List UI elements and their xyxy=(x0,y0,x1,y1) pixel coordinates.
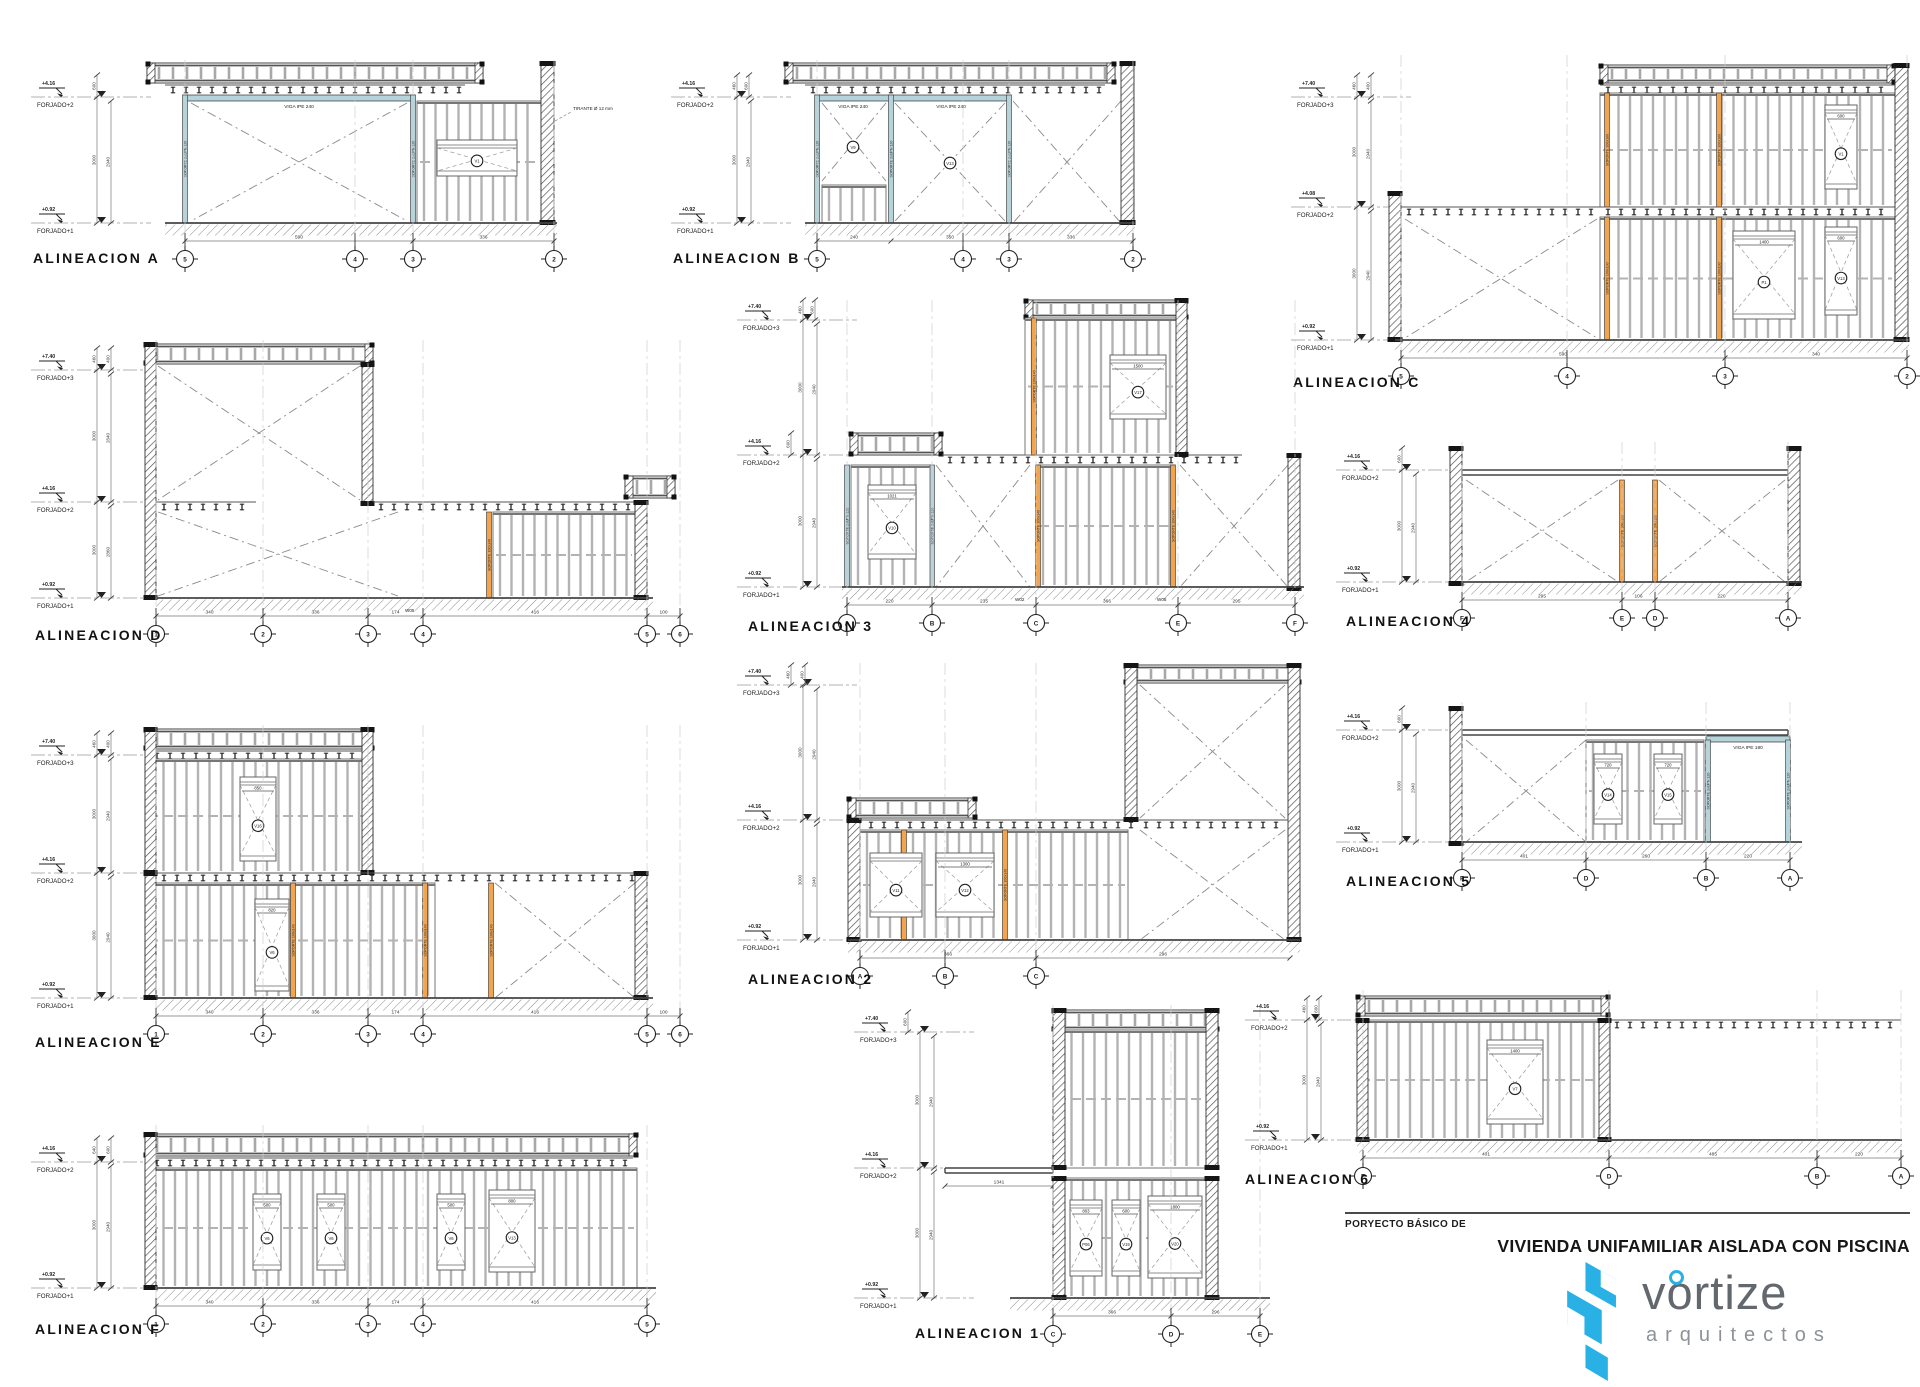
ground-hatch xyxy=(1462,582,1802,595)
hatched-wall xyxy=(1787,446,1802,586)
hatched-wall xyxy=(634,871,649,1000)
panel-alineacion-d: +7.40FORJADO+3+4.16FORJADO+2+0.92FORJADO… xyxy=(25,330,715,655)
svg-text:FORJADO+2: FORJADO+2 xyxy=(677,102,714,109)
vertical-dimension: 2940 xyxy=(106,1164,115,1291)
window-opening: 500V6 xyxy=(253,1194,281,1270)
svg-text:W05: W05 xyxy=(405,608,415,613)
joist-row xyxy=(1138,820,1288,828)
vertical-dimension: 3000 xyxy=(92,500,101,601)
svg-text:ALINEACION 6: ALINEACION 6 xyxy=(1245,1171,1370,1187)
hatched-wall xyxy=(1598,1018,1612,1142)
svg-text:D: D xyxy=(1169,1331,1174,1338)
level-marker: +0.92FORJADO+1 xyxy=(31,207,151,235)
vertical-dimension: 2940 xyxy=(812,822,821,943)
vertical-dimension: 600 xyxy=(903,1010,912,1035)
dimension-chain: 340336174416100 xyxy=(154,1010,683,1019)
svg-text:460: 460 xyxy=(92,740,97,748)
svg-text:2940: 2940 xyxy=(106,932,111,943)
stud-wall xyxy=(822,185,886,223)
svg-text:401: 401 xyxy=(1520,854,1528,860)
svg-text:FORJADO+2: FORJADO+2 xyxy=(1297,212,1334,219)
svg-text:3000: 3000 xyxy=(798,382,803,393)
svg-text:174: 174 xyxy=(391,1300,399,1306)
svg-text:ALINEACION 5: ALINEACION 5 xyxy=(1346,873,1471,889)
svg-text:500: 500 xyxy=(327,1203,335,1208)
svg-text:B: B xyxy=(1704,875,1709,882)
svg-text:FORJADO+1: FORJADO+1 xyxy=(1251,1145,1288,1152)
svg-text:460: 460 xyxy=(1352,82,1357,90)
stud-wall xyxy=(145,883,435,998)
svg-text:106: 106 xyxy=(1634,594,1642,600)
column: SOPORTE 100x140 xyxy=(1171,465,1176,587)
svg-text:ALINEACION F: ALINEACION F xyxy=(35,1321,161,1337)
panel-label: ALINEACION 6 xyxy=(1245,1171,1370,1187)
panel-alineacion-b: +4.16FORJADO+2+0.92FORJADO+1460600300029… xyxy=(665,35,1205,270)
slab-edge xyxy=(1462,730,1788,735)
ground-hatch xyxy=(165,223,557,236)
svg-text:850: 850 xyxy=(254,786,262,791)
vertical-dimension: 400 xyxy=(106,346,115,373)
svg-text:+4.16: +4.16 xyxy=(42,81,55,87)
svg-text:VIGA IPE 240: VIGA IPE 240 xyxy=(284,104,314,110)
vertical-dimension: 3000 xyxy=(915,1030,924,1171)
svg-text:4: 4 xyxy=(421,1321,425,1328)
svg-text:4: 4 xyxy=(1565,373,1569,380)
panel-alineacion-a: +4.16FORJADO+2+0.92FORJADO+160030002940V… xyxy=(25,35,655,270)
svg-text:V14: V14 xyxy=(1604,792,1612,797)
svg-text:V12: V12 xyxy=(961,888,969,893)
joist-band xyxy=(1124,664,1302,685)
svg-text:FORJADO+2: FORJADO+2 xyxy=(37,878,74,885)
dimension-chain: 295106220 xyxy=(1460,594,1791,603)
logo-ring-icon xyxy=(1669,1270,1684,1285)
svg-text:+7.40: +7.40 xyxy=(865,1016,878,1022)
vertical-dimension: 600 xyxy=(786,431,795,458)
svg-text:V20: V20 xyxy=(1171,1241,1179,1246)
svg-text:SOPORTE 100x100: SOPORTE 100x100 xyxy=(1606,134,1610,166)
svg-text:1800: 1800 xyxy=(1170,1205,1180,1210)
svg-text:3000: 3000 xyxy=(798,515,803,526)
svg-text:+4.16: +4.16 xyxy=(865,1152,878,1158)
level-marker: +4.16FORJADO+2 xyxy=(31,486,151,514)
svg-text:295: 295 xyxy=(1538,594,1546,600)
svg-text:3000: 3000 xyxy=(92,808,97,819)
vertical-dimension: 400 xyxy=(800,663,809,688)
svg-text:340: 340 xyxy=(205,610,213,616)
svg-text:V17: V17 xyxy=(1134,390,1142,395)
panel-alineacion-c: +7.40FORJADO+3+4.08FORJADO+2+0.92FORJADO… xyxy=(1285,35,1920,395)
svg-text:600: 600 xyxy=(744,82,749,90)
svg-text:2: 2 xyxy=(1905,373,1909,380)
svg-text:3000: 3000 xyxy=(92,154,97,165)
svg-text:FORJADO+2: FORJADO+2 xyxy=(37,102,74,109)
svg-text:401: 401 xyxy=(1482,1152,1490,1158)
svg-text:220: 220 xyxy=(1717,594,1725,600)
svg-text:FORJADO+3: FORJADO+3 xyxy=(860,1037,897,1044)
svg-text:416: 416 xyxy=(531,1010,539,1016)
joist-row xyxy=(942,455,1242,463)
svg-text:240: 240 xyxy=(850,235,858,241)
svg-text:FORJADO+3: FORJADO+3 xyxy=(1297,102,1334,109)
vertical-dimension: 2940 xyxy=(106,99,115,226)
svg-text:296: 296 xyxy=(1211,1310,1219,1316)
svg-text:V16: V16 xyxy=(254,824,262,829)
vertical-dimension: 2940 xyxy=(812,687,821,823)
hatched-wall xyxy=(144,871,158,1000)
svg-text:3: 3 xyxy=(366,1031,370,1038)
window-opening: 1500V17 xyxy=(1110,355,1166,419)
svg-text:V6: V6 xyxy=(264,1236,270,1241)
cross-brace-icon xyxy=(1013,101,1121,223)
svg-text:220: 220 xyxy=(1855,1152,1863,1158)
panel-label: ALINEACION E xyxy=(35,1034,162,1050)
cross-brace-icon xyxy=(936,465,1030,587)
svg-text:+7.40: +7.40 xyxy=(42,739,55,745)
svg-text:ALINEACION 2: ALINEACION 2 xyxy=(748,971,873,987)
dimension-chain: 401485220 xyxy=(1361,1152,1904,1161)
hatched-wall xyxy=(144,342,158,600)
stud-wall xyxy=(1357,1020,1609,1140)
svg-text:FORJADO+1: FORJADO+1 xyxy=(37,228,74,235)
cross-brace-icon xyxy=(191,103,407,221)
stud-wall xyxy=(1053,1030,1218,1168)
svg-text:ALINEACION B: ALINEACION B xyxy=(673,250,801,266)
level-marker: +0.92FORJADO+1 xyxy=(671,207,791,235)
svg-text:3000: 3000 xyxy=(1352,146,1357,157)
vertical-dimension: 460 xyxy=(786,663,795,688)
vertical-dimension: 600 xyxy=(810,298,819,323)
svg-text:SOPORTE 100x100: SOPORTE 100x100 xyxy=(1654,515,1658,547)
svg-text:600: 600 xyxy=(810,306,815,314)
svg-text:FORJADO+2: FORJADO+2 xyxy=(37,1167,74,1174)
ground-hatch xyxy=(1462,842,1802,855)
svg-text:F: F xyxy=(1293,620,1297,627)
cross-brace-icon xyxy=(1466,480,1618,582)
panel-alineacion-4: +4.16FORJADO+2+0.92FORJADO+160030002940S… xyxy=(1330,430,1920,645)
svg-text:3000: 3000 xyxy=(915,1227,920,1238)
column: SOPORTE 100x140 xyxy=(487,512,492,598)
svg-text:FORJADO+3: FORJADO+3 xyxy=(37,760,74,767)
svg-text:2940: 2940 xyxy=(1411,782,1416,793)
svg-text:590: 590 xyxy=(1559,352,1567,358)
svg-text:1400: 1400 xyxy=(1510,1049,1520,1054)
level-marker: +7.40FORJADO+3 xyxy=(737,669,857,697)
joist-band xyxy=(624,475,677,500)
svg-text:W02: W02 xyxy=(1015,597,1025,602)
svg-text:220: 220 xyxy=(1744,854,1752,860)
window-opening: 1300V12 xyxy=(936,853,994,917)
cross-brace-icon xyxy=(495,883,635,998)
svg-text:174: 174 xyxy=(391,610,399,616)
svg-text:+0.92: +0.92 xyxy=(1256,1124,1269,1130)
vertical-dimension: 2940 xyxy=(106,875,115,1001)
svg-text:FORJADO+1: FORJADO+1 xyxy=(860,1303,897,1310)
window-opening: 720V15 xyxy=(1654,754,1682,824)
svg-text:460: 460 xyxy=(92,355,97,363)
level-marker: +4.16FORJADO+2 xyxy=(31,857,151,885)
svg-text:+4.16: +4.16 xyxy=(748,804,761,810)
svg-text:FORJADO+2: FORJADO+2 xyxy=(1342,735,1379,742)
column: SOPORTE 100x100 xyxy=(1605,93,1610,207)
hatched-wall xyxy=(1175,298,1189,457)
svg-text:B: B xyxy=(930,620,935,627)
column: SOPORTE 100x100 xyxy=(1605,217,1610,340)
svg-text:+0.92: +0.92 xyxy=(1347,826,1360,832)
svg-text:FORJADO+2: FORJADO+2 xyxy=(1251,1025,1288,1032)
svg-text:590: 590 xyxy=(295,235,303,241)
svg-text:V6: V6 xyxy=(269,950,275,955)
svg-text:220: 220 xyxy=(885,599,893,605)
vertical-dimension: 2940 xyxy=(929,1034,938,1171)
panel-alineacion-e: +7.40FORJADO+3+4.16FORJADO+2+0.92FORJADO… xyxy=(25,715,715,1055)
svg-text:1500: 1500 xyxy=(1133,364,1143,369)
svg-text:E: E xyxy=(1258,1331,1263,1338)
svg-text:295: 295 xyxy=(1232,599,1240,605)
panel-alineacion-1: +7.40FORJADO+3+4.16FORJADO+2+0.92FORJADO… xyxy=(750,1000,1260,1385)
hatched-wall xyxy=(1449,706,1464,846)
svg-text:3000: 3000 xyxy=(92,1219,97,1230)
svg-text:+4.16: +4.16 xyxy=(682,81,695,87)
svg-text:+0.92: +0.92 xyxy=(42,582,55,588)
cross-brace-icon xyxy=(1659,480,1785,582)
svg-text:A: A xyxy=(1899,1173,1904,1180)
hatched-wall xyxy=(144,1132,158,1290)
level-marker: +4.16FORJADO+2 xyxy=(854,1152,974,1180)
vertical-dimension: 3000 xyxy=(1397,468,1406,585)
vertical-dimension: 2940 xyxy=(1411,732,1420,845)
svg-text:3000: 3000 xyxy=(1352,268,1357,279)
svg-text:800: 800 xyxy=(508,1199,516,1204)
svg-text:P06: P06 xyxy=(1082,1242,1090,1247)
dimension-chain: 340336174416 xyxy=(154,1300,650,1309)
svg-text:FORJADO+1: FORJADO+1 xyxy=(1342,587,1379,594)
svg-text:FORJADO+2: FORJADO+2 xyxy=(743,460,780,467)
vertical-dimension: 2940 xyxy=(929,1170,938,1301)
ground-hatch xyxy=(156,998,653,1011)
joist-row xyxy=(1600,85,1895,93)
svg-text:340: 340 xyxy=(1812,352,1820,358)
level-marker: +4.16FORJADO+2 xyxy=(737,804,857,832)
joist-band xyxy=(849,432,944,457)
slab-edge xyxy=(945,1168,1053,1173)
architect-logo: vortize arquitectos xyxy=(1540,1262,1915,1382)
svg-text:FORJADO+3: FORJADO+3 xyxy=(743,325,780,332)
svg-text:366: 366 xyxy=(1103,599,1111,605)
svg-text:FORJADO+2: FORJADO+2 xyxy=(860,1173,897,1180)
panel-label: ALINEACION 5 xyxy=(1346,873,1471,889)
svg-text:V10: V10 xyxy=(888,526,896,531)
svg-text:3000: 3000 xyxy=(798,874,803,885)
svg-text:+4.16: +4.16 xyxy=(1347,454,1360,460)
svg-text:V6: V6 xyxy=(448,1236,454,1241)
svg-text:C: C xyxy=(1034,973,1039,980)
svg-text:600: 600 xyxy=(1122,1209,1130,1214)
cross-brace-icon xyxy=(1140,685,1285,818)
svg-text:D: D xyxy=(1653,615,1658,622)
dimension-chain: 340336174416100 xyxy=(154,610,683,619)
annotation: W05 xyxy=(405,608,415,613)
vertical-dimension: 600 xyxy=(744,73,753,100)
window-opening: 1800V20 xyxy=(1148,1196,1202,1278)
logo-subtitle: arquitectos xyxy=(1646,1324,1832,1347)
svg-text:D: D xyxy=(1584,875,1589,882)
svg-text:600: 600 xyxy=(1837,114,1845,119)
svg-text:SOPORTE 100x100: SOPORTE 100x100 xyxy=(1621,515,1625,547)
element-tag: V9 xyxy=(847,141,859,153)
svg-text:A: A xyxy=(1786,615,1791,622)
svg-text:ALINEACION D: ALINEACION D xyxy=(35,627,163,643)
ground-hatch xyxy=(1010,1298,1270,1311)
drawing-sheet: +4.16FORJADO+2+0.92FORJADO+160030002940V… xyxy=(0,0,1920,1387)
panel-alineacion-f: +4.16FORJADO+2+0.92FORJADO+1640600300029… xyxy=(25,1100,715,1380)
hatched-wall xyxy=(1287,663,1302,942)
svg-text:C: C xyxy=(1034,620,1039,627)
logo-wordmark: vortize xyxy=(1642,1268,1787,1318)
vertical-dimension: 3000 xyxy=(92,753,101,876)
svg-text:5: 5 xyxy=(645,1031,649,1038)
svg-text:2940: 2940 xyxy=(929,1229,934,1240)
level-marker: +4.16FORJADO+2 xyxy=(737,439,857,467)
level-marker: +7.40FORJADO+3 xyxy=(854,1016,974,1044)
svg-text:VIGA IPE 240: VIGA IPE 240 xyxy=(838,104,868,110)
svg-text:SOPORTE 2xUPN 120: SOPORTE 2xUPN 120 xyxy=(931,508,935,545)
svg-text:+0.92: +0.92 xyxy=(42,982,55,988)
svg-text:2940: 2940 xyxy=(812,517,817,528)
ground-hatch xyxy=(842,587,1304,600)
svg-text:3000: 3000 xyxy=(1397,780,1402,791)
svg-text:+0.92: +0.92 xyxy=(1347,566,1360,572)
svg-text:ALINEACION E: ALINEACION E xyxy=(35,1034,162,1050)
level-marker: +0.92FORJADO+1 xyxy=(1336,826,1456,854)
joist-band xyxy=(1356,995,1611,1018)
title-block: PORYECTO BÁSICO DE VIVIENDA UNIFAMILIAR … xyxy=(1345,1212,1910,1257)
panel-label: ALINEACION 1 xyxy=(915,1325,1040,1341)
svg-text:3000: 3000 xyxy=(1302,1074,1307,1085)
svg-text:2940: 2940 xyxy=(812,384,817,395)
svg-text:SOPORTE 2xUPN 120: SOPORTE 2xUPN 120 xyxy=(1707,773,1711,810)
svg-text:3: 3 xyxy=(366,1321,370,1328)
joist-row xyxy=(165,85,465,93)
svg-text:SOPORTE 100x140: SOPORTE 100x140 xyxy=(1037,510,1041,542)
svg-text:500: 500 xyxy=(447,1203,455,1208)
svg-text:400: 400 xyxy=(106,355,111,363)
column: SOPORTE 100x100 xyxy=(1717,93,1722,207)
steel-beam: VIGA IPE 240 xyxy=(183,95,415,110)
window-opening: 600V19 xyxy=(1112,1200,1140,1276)
level-marker: +0.92FORJADO+1 xyxy=(31,582,151,610)
joist-row xyxy=(1600,207,1895,215)
svg-text:SOPORTE 100x100: SOPORTE 100x100 xyxy=(1718,134,1722,166)
hatched-wall xyxy=(1052,1176,1067,1300)
svg-text:ALINEACION 3: ALINEACION 3 xyxy=(748,618,873,634)
level-marker: +0.92FORJADO+1 xyxy=(854,1282,974,1310)
hatched-wall xyxy=(1052,1008,1067,1170)
cross-brace-icon xyxy=(158,366,360,500)
annotation: TIRANTE Ø 12 mm xyxy=(573,106,613,111)
svg-text:+0.92: +0.92 xyxy=(865,1282,878,1288)
vertical-dimension: 400 xyxy=(1366,73,1375,100)
svg-text:600: 600 xyxy=(903,1018,908,1026)
svg-text:336: 336 xyxy=(311,1010,319,1016)
svg-text:E: E xyxy=(1620,615,1625,622)
svg-text:SOPORTE 100x100: SOPORTE 100x100 xyxy=(1718,262,1722,294)
level-marker: +0.92FORJADO+1 xyxy=(1245,1124,1365,1152)
svg-text:600: 600 xyxy=(1397,715,1402,723)
window-opening: V1 xyxy=(437,140,517,176)
panel-label: ALINEACION 4 xyxy=(1346,613,1471,629)
svg-text:FORJADO+1: FORJADO+1 xyxy=(1342,847,1379,854)
joist-row xyxy=(1609,1020,1901,1028)
svg-text:+7.40: +7.40 xyxy=(42,354,55,360)
svg-text:FORJADO+2: FORJADO+2 xyxy=(1342,475,1379,482)
svg-text:460: 460 xyxy=(798,306,803,314)
vertical-dimension: 3000 xyxy=(798,453,807,590)
window-opening: 500V6 xyxy=(317,1194,345,1270)
svg-text:416: 416 xyxy=(531,610,539,616)
window-opening: 850V16 xyxy=(240,777,276,861)
svg-text:SOPORTE 100x140: SOPORTE 100x140 xyxy=(490,924,494,956)
svg-text:460: 460 xyxy=(732,82,737,90)
dimension-chain: 590336 xyxy=(183,235,557,244)
svg-text:V6: V6 xyxy=(328,1236,334,1241)
svg-text:260: 260 xyxy=(1642,854,1650,860)
svg-text:2940: 2940 xyxy=(929,1096,934,1107)
svg-text:460: 460 xyxy=(786,671,791,679)
annotation: W02 xyxy=(1015,597,1025,602)
hatched-wall xyxy=(847,818,862,942)
svg-text:3: 3 xyxy=(1723,373,1727,380)
svg-text:SOPORTE 100x140: SOPORTE 100x140 xyxy=(1004,869,1008,901)
svg-text:600: 600 xyxy=(1397,455,1402,463)
hatched-wall xyxy=(1287,453,1302,591)
vertical-dimension: 2860 xyxy=(106,504,115,601)
vertical-dimension: 2940 xyxy=(746,99,755,226)
level-marker: +0.92FORJADO+1 xyxy=(31,1272,151,1300)
svg-text:ALINEACION 4: ALINEACION 4 xyxy=(1346,613,1471,629)
window-opening: 500V6 xyxy=(437,1194,465,1270)
svg-text:P1: P1 xyxy=(1761,280,1767,285)
joist-band xyxy=(1024,299,1189,320)
hatched-wall xyxy=(1449,446,1464,586)
joist-band xyxy=(144,728,375,751)
svg-text:2: 2 xyxy=(261,631,265,638)
svg-text:2940: 2940 xyxy=(1411,522,1416,533)
svg-text:600: 600 xyxy=(92,82,97,90)
joist-band xyxy=(784,62,1117,85)
annotation: W05 xyxy=(1157,597,1167,602)
svg-text:400: 400 xyxy=(106,740,111,748)
svg-text:FORJADO+1: FORJADO+1 xyxy=(743,592,780,599)
svg-text:336: 336 xyxy=(479,235,487,241)
svg-text:600: 600 xyxy=(106,1146,111,1154)
svg-text:3000: 3000 xyxy=(732,154,737,165)
svg-text:2: 2 xyxy=(1131,256,1135,263)
hatched-wall xyxy=(1388,191,1403,342)
dimension-chain: 240350336 xyxy=(815,235,1136,244)
svg-text:TIRANTE Ø 12 mm: TIRANTE Ø 12 mm xyxy=(573,106,613,111)
svg-text:3: 3 xyxy=(411,256,415,263)
svg-text:4: 4 xyxy=(421,631,425,638)
ground-hatch xyxy=(156,1288,656,1301)
svg-text:+0.92: +0.92 xyxy=(682,207,695,213)
svg-text:+7.40: +7.40 xyxy=(1302,81,1315,87)
vertical-dimension: 3000 xyxy=(1352,205,1361,343)
window-opening: 800V13 xyxy=(489,1190,535,1272)
svg-text:820: 820 xyxy=(268,908,276,913)
svg-text:3000: 3000 xyxy=(92,544,97,555)
svg-text:3000: 3000 xyxy=(1397,520,1402,531)
svg-text:SOPORTE 2xUPN 120: SOPORTE 2xUPN 120 xyxy=(846,508,850,545)
